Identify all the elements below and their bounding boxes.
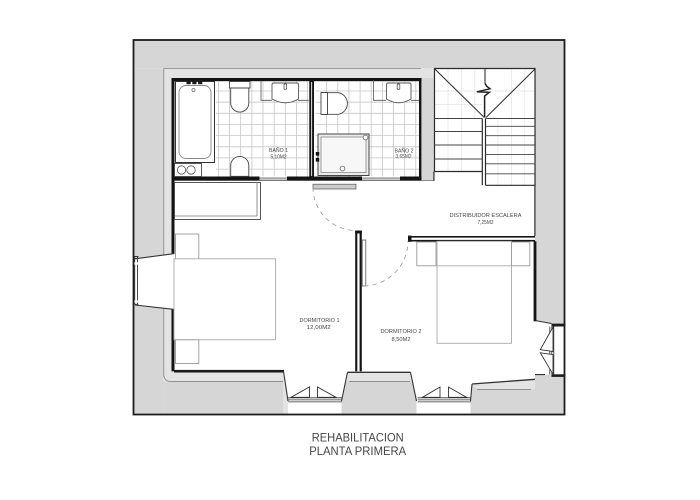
svg-text:5,10M2: 5,10M2 <box>271 154 287 160</box>
svg-text:3,65M2: 3,65M2 <box>396 154 412 160</box>
svg-text:7,25M2: 7,25M2 <box>478 220 494 226</box>
svg-text:DORMITORIO 1: DORMITORIO 1 <box>300 318 340 324</box>
svg-text:BAÑO 1: BAÑO 1 <box>269 147 288 154</box>
svg-text:DORMITORIO 2: DORMITORIO 2 <box>381 329 422 335</box>
svg-text:PLANTA PRIMERA: PLANTA PRIMERA <box>309 444 407 458</box>
svg-text:REHABILITACION: REHABILITACION <box>312 430 404 444</box>
svg-text:DISTRIBUIDOR ESCALERA: DISTRIBUIDOR ESCALERA <box>450 213 522 219</box>
svg-text:8,50M2: 8,50M2 <box>392 337 411 343</box>
svg-text:12,00M2: 12,00M2 <box>307 325 331 331</box>
